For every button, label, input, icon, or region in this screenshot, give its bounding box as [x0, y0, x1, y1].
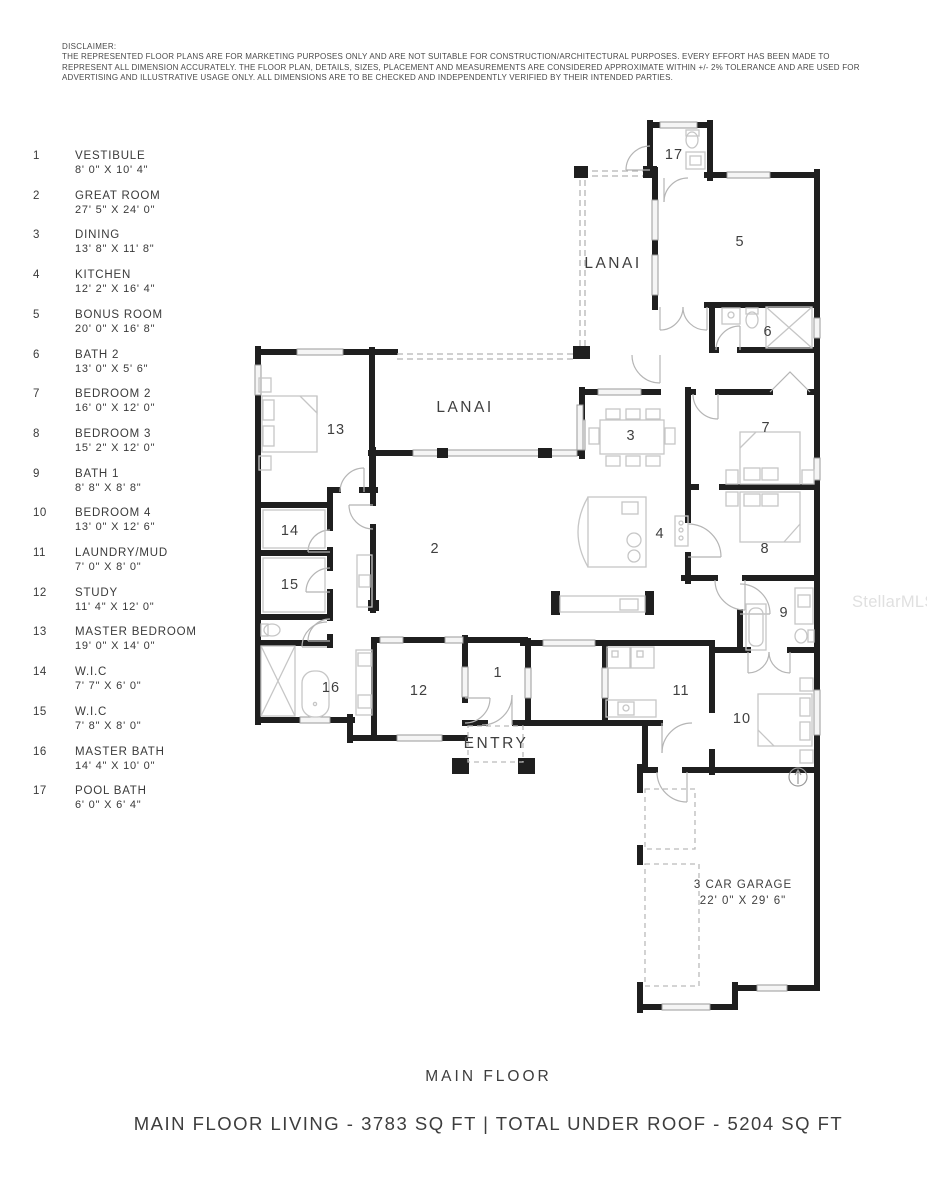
room-number-label: 3: [626, 428, 635, 444]
room-number-label: 15: [281, 577, 299, 593]
room-number-label: 13: [327, 422, 345, 438]
room-number-label: 4: [655, 526, 664, 542]
plan-footer: MAIN FLOOR MAIN FLOOR LIVING - 3783 SQ F…: [50, 1068, 927, 1135]
plan-labels: 1234567891011121314151617LANAILANAIENTRY…: [281, 147, 792, 907]
room-number-label: 16: [322, 680, 340, 696]
room-number-label: 2: [430, 541, 439, 557]
room-number-label: 11: [672, 683, 689, 699]
area-summary: MAIN FLOOR LIVING - 3783 SQ FT | TOTAL U…: [50, 1113, 927, 1135]
door-swings: [302, 146, 810, 802]
garage-bays: [468, 726, 699, 986]
floor-plan-page: DISCLAIMER: THE REPRESENTED FLOOR PLANS …: [0, 0, 927, 1200]
area-label: LANAI: [584, 255, 641, 272]
room-number-label: 10: [733, 711, 751, 727]
room-number-label: 6: [763, 324, 772, 340]
area-label: LANAI: [436, 399, 493, 416]
floor-plan-drawing: 1234567891011121314151617LANAILANAIENTRY…: [0, 0, 927, 1200]
garage-label-dims: 22' 0" X 29' 6": [700, 895, 786, 907]
north-symbol: [789, 768, 807, 786]
room-number-label: 7: [761, 420, 770, 436]
room-number-label: 14: [281, 523, 299, 539]
walls: [258, 123, 817, 1010]
windows: [255, 122, 820, 1010]
area-label: ENTRY: [464, 735, 529, 752]
room-number-label: 1: [493, 665, 502, 681]
garage-label: 3 CAR GARAGE: [694, 879, 792, 891]
room-number-label: 9: [779, 605, 788, 621]
room-number-label: 17: [665, 147, 683, 163]
room-number-label: 5: [735, 234, 744, 250]
floor-name: MAIN FLOOR: [50, 1068, 927, 1086]
watermark: StellarMLS: [852, 593, 927, 612]
room-number-label: 8: [760, 541, 769, 557]
room-number-label: 12: [410, 683, 428, 699]
fixtures: [259, 130, 814, 763]
